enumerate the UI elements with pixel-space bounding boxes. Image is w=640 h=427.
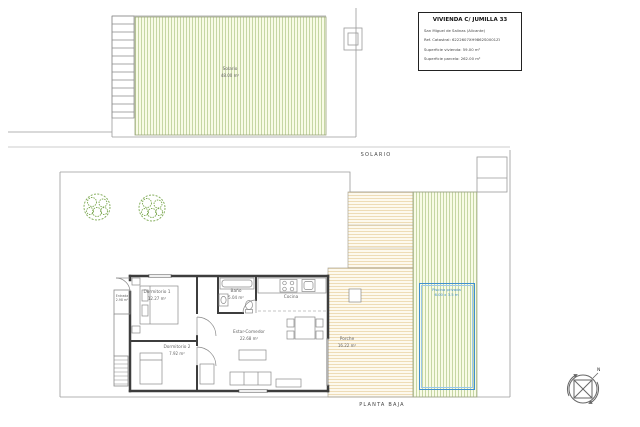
project-title: VIVIENDA C/ JUMILLA 33 <box>419 17 521 23</box>
nightstand <box>132 278 140 285</box>
chair <box>287 331 294 339</box>
floor-plan-canvas: Solario 48.00 m² Dormitorio 1 12.27 m² D… <box>0 0 640 427</box>
entry-annex <box>114 290 130 386</box>
coffee-table <box>239 350 266 360</box>
plan-linework <box>0 0 640 427</box>
tree-1 <box>84 194 110 220</box>
dwelling-area: Superficie vivienda: 59.00 m² <box>424 47 521 52</box>
room-label-porche: Porche 16.22 m² <box>322 337 372 348</box>
room-label-cocina: Cocina <box>266 295 316 301</box>
north-label: N <box>597 368 600 373</box>
wardrobe <box>200 364 214 384</box>
upper-stairs <box>112 16 134 118</box>
chair <box>287 319 294 327</box>
lower-plan-title: PLANTA BAJA <box>350 402 414 408</box>
project-location: San Miguel de Salinas (Alicante) <box>424 28 521 33</box>
sofa <box>230 372 271 385</box>
compass-icon <box>567 373 598 403</box>
dining-table <box>295 317 315 339</box>
room-label-estar-comedor: Estar-Comedor 22.68 m² <box>224 330 274 341</box>
room-label-dormitorio-1: Dormitorio 1 12.27 m² <box>132 290 182 301</box>
title-block: VIVIENDA C/ JUMILLA 33 San Miguel de Sal… <box>418 12 522 71</box>
pool-label: Piscina privada 6.00 x 3.5 m <box>420 288 473 298</box>
upper-plan-title: SOLARIO <box>346 152 406 158</box>
room-label-solario: Solario 48.00 m² <box>205 67 255 78</box>
tv-cabinet <box>276 379 301 387</box>
bed-single <box>140 353 162 384</box>
stove <box>280 280 297 293</box>
garden-trees <box>84 194 165 221</box>
porch-table <box>349 289 361 302</box>
cadastral-reference: Ref. Catastral: 6222607XH9862S0001ZI <box>424 37 521 42</box>
room-label-dormitorio-2: Dormitorio 2 7.92 m² <box>152 345 202 356</box>
room-label-entrada: Entrada 2.98 m² <box>106 294 138 302</box>
tree-2 <box>139 195 165 221</box>
plot-area: Superficie parcela: 262.00 m² <box>424 56 521 61</box>
chair <box>316 319 323 327</box>
room-label-bano: Baño 5.04 m² <box>216 289 256 300</box>
nightstand <box>132 326 140 333</box>
